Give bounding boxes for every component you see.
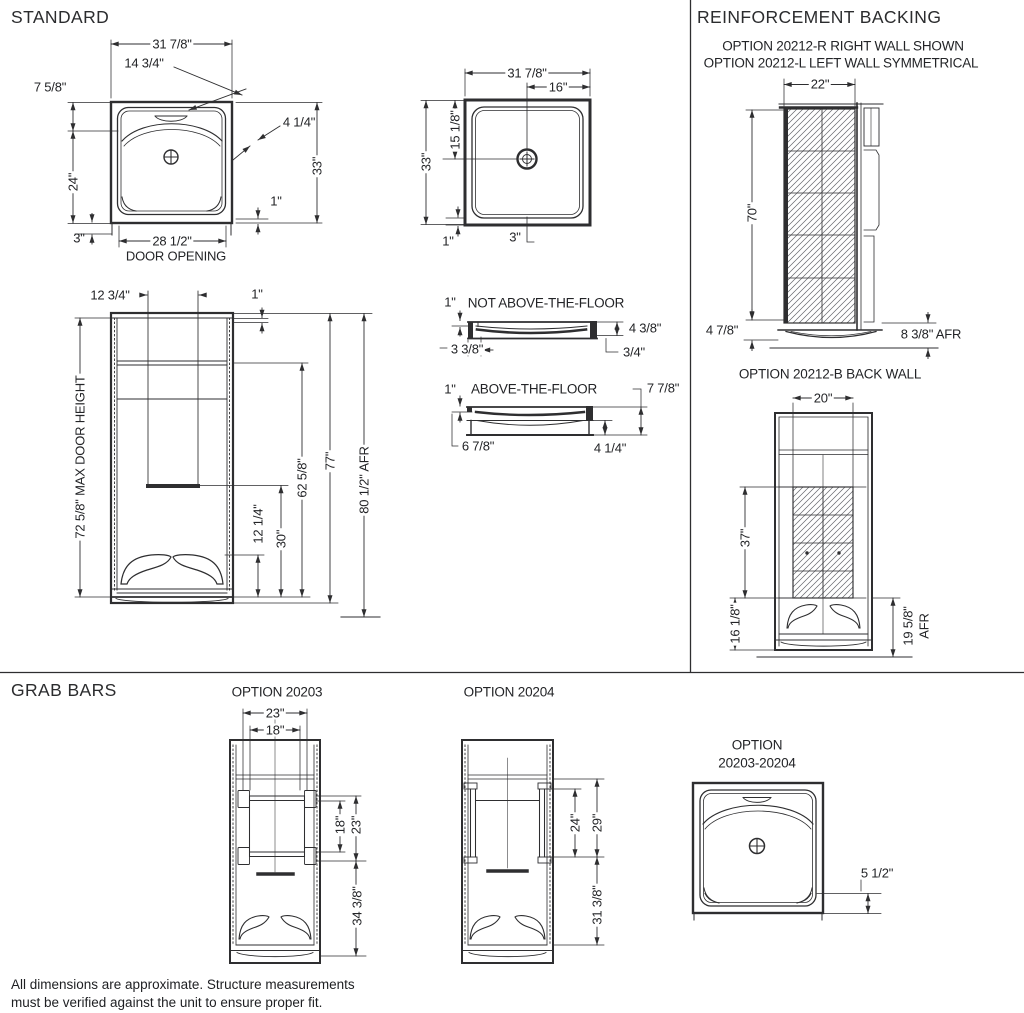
dim-plan1-corner: 4 1/4" [283,116,315,129]
grab-bar-combo-plan-view [693,783,881,920]
dim-back-panel-height: 37" [739,527,752,549]
dim-elev-afr-height: 80 1/2" AFR [358,444,371,515]
section-title-standard: STANDARD [11,7,109,28]
dim-side-afr: 8 3/8" AFR [899,328,963,341]
standard-plan-top-view [68,40,322,247]
dim-plan2-drain-offset: 3" [509,231,520,244]
reinforcement-subtitle-right-wall: OPTION 20212-R RIGHT WALL SHOWN [722,39,964,53]
back-wall-option-title: OPTION 20212-B BACK WALL [739,367,921,381]
option-20203-title: OPTION 20203 [232,685,323,699]
floor-section-above [452,389,647,446]
dim-elev-top-offset: 1" [251,288,262,301]
dim-plan2-depth: 33" [420,151,433,173]
dim-af-left-inset: 6 7/8" [462,440,494,453]
dim-20203-outer-width: 23" [264,707,286,720]
dim-plan2-drain-y: 15 1/8" [449,108,462,151]
footer-note-line1: All dimensions are approximate. Structur… [11,977,355,992]
dim-plan1-right-offset: 1" [270,195,281,208]
dim-side-width: 22" [809,78,831,91]
section-title-reinforcement: REINFORCEMENT BACKING [697,7,941,28]
label-plan1-door-opening: DOOR OPENING [126,250,226,263]
dim-plan1-width: 31 7/8" [150,38,193,51]
dim-elev-max-door-height: 72 5/8" MAX DOOR HEIGHT [74,373,87,540]
grab-bar-frame [238,791,316,865]
dim-elev-shelf-height: 30" [275,528,288,550]
option-20204-title: OPTION 20204 [464,685,555,699]
standard-plan-top-view-2 [421,69,590,242]
dim-side-height: 70" [746,202,759,224]
dim-plan2-corner-offset: 1" [442,235,453,248]
dim-elev-shelf-width: 12 3/4" [90,289,129,302]
grab-bar-option-20204-view [462,740,604,963]
dim-plan2-width: 31 7/8" [505,67,548,80]
dim-elev-seat-height: 12 1/4" [252,502,265,545]
reinforcement-subtitle-left-wall: OPTION 20212-L LEFT WALL SYMMETRICAL [704,56,979,70]
dim-20203-inner-width: 18" [264,724,286,737]
dim-af-lip: 1" [444,383,455,396]
dim-plan1-dam-offset: 14 3/4" [124,57,163,70]
dim-20204-bar-length: 24" [569,812,582,834]
dim-elev-height: 77" [324,450,337,472]
dim-plan1-depth: 33" [311,155,324,177]
dim-20203-mount-height: 23" [350,814,363,836]
dim-20204-mount-length: 29" [591,812,604,834]
title-above-the-floor: ABOVE-THE-FLOOR [471,382,597,396]
reinforcement-back-wall-view [730,398,912,657]
dim-plan1-lip: 7 5/8" [34,81,66,94]
dim-plan2-drain-x: 16" [547,81,569,94]
option-combo-title-line2: 20203-20204 [718,756,795,770]
dim-plan1-left: 24" [67,171,80,193]
dim-20203-bar-height: 18" [334,814,347,836]
reinforcement-side-view [744,79,938,359]
dim-plan1-left-offset: 3" [73,232,84,245]
dim-af-height: 7 7/8" [647,382,679,395]
spec-sheet: STANDARD REINFORCEMENT BACKING GRAB BARS… [0,0,1024,1013]
dim-back-width: 20" [812,392,834,405]
dim-combo-edge-offset: 5 1/2" [861,867,893,880]
dim-na-lip: 1" [444,296,455,309]
title-not-above-the-floor: NOT ABOVE-THE-FLOOR [468,296,624,310]
dim-back-afr-value: 19 5/8" [902,606,915,645]
drain-icon [750,839,765,854]
technical-drawing-canvas [0,0,1024,1013]
dim-na-height: 4 3/8" [629,322,661,335]
dim-20203-floor-height: 34 3/8" [351,884,364,927]
dim-side-base-height: 4 7/8" [706,324,738,337]
drain-icon [164,150,178,164]
dim-na-right-inset: 3/4" [623,346,645,359]
dim-af-right-inset: 4 1/4" [594,442,626,455]
dim-back-bottom-height: 16 1/8" [729,602,742,645]
footer-note-line2: must be verified against the unit to ens… [11,995,322,1010]
drain-icon [518,150,537,169]
dim-back-afr-label: AFR [918,613,931,638]
section-title-grab-bars: GRAB BARS [11,680,117,701]
dim-na-left-inset: 3 3/8" [449,343,485,356]
dim-elev-inner-height: 62 5/8" [296,456,309,499]
option-combo-title-line1: OPTION [732,738,783,752]
dim-plan1-door-width: 28 1/2" [150,235,193,248]
dim-20204-floor-height: 31 3/8" [591,883,604,926]
